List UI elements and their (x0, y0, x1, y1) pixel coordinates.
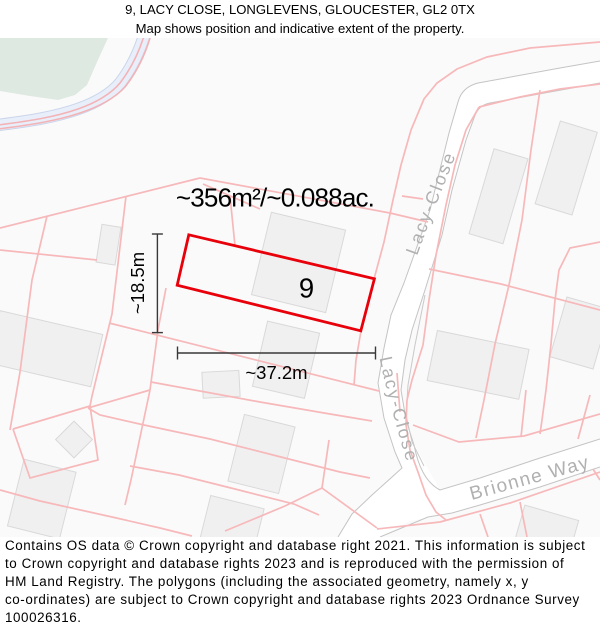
svg-text:~37.2m: ~37.2m (245, 362, 307, 383)
svg-text:~356m²/~0.088ac.: ~356m²/~0.088ac. (176, 183, 374, 213)
svg-text:~18.5m: ~18.5m (127, 252, 148, 314)
svg-text:9: 9 (299, 273, 314, 304)
